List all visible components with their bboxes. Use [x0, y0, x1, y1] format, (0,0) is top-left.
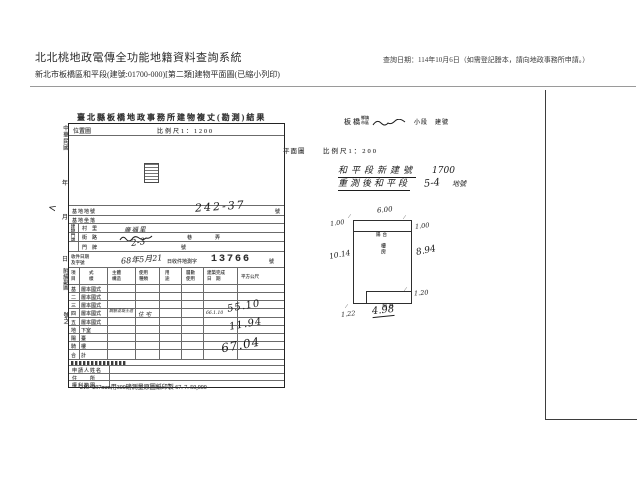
receipt-suffix: 號 — [269, 258, 274, 265]
balcony-top-strip: 陽台 — [354, 221, 411, 232]
page-edge-bottom — [545, 419, 637, 420]
plan-note2-suffix: 地號 — [452, 180, 466, 188]
col-header-usetype: 使用 種類 — [139, 270, 148, 282]
plan-scale: 比例尺1：200 — [323, 145, 378, 155]
door-label: 門 牌 — [82, 244, 97, 251]
floor-cell: 合 — [71, 352, 76, 359]
dim-top-right: 1.00 — [415, 221, 430, 230]
site-lot-label: 基地地號 — [72, 208, 96, 215]
dim-bottom: 4.98 — [371, 304, 394, 318]
site-lot-suffix: 號 — [275, 208, 280, 215]
structure-handwritten: 鋼筋混凝土造 — [109, 309, 135, 314]
form-title: 臺北縣板橋地政事務所建物複丈(勘測)結果 — [77, 112, 266, 123]
col-header-floors: 層數 使用 — [186, 270, 195, 282]
receipt-prefix: 日收件地測字 — [167, 258, 197, 265]
query-date: 查詢日期：114年10月6日（如需登記謄本，請向地政事務所申請。） — [383, 55, 589, 65]
page-edge-vertical — [545, 90, 546, 420]
form-footer-note: 210×297mm用300磅測量原圖紙印製 67. 7. 50,000 — [80, 382, 207, 391]
location-map-scale: 比例尺1：1200 — [157, 126, 214, 135]
style-cell: 計 — [81, 352, 86, 359]
plan-section-label: 小段 建號 — [414, 117, 449, 126]
plan-note2-text: 重測後和平段 — [338, 179, 410, 191]
dim-bottom-left: 1.22 — [341, 309, 356, 318]
door-suffix: 號 — [181, 244, 186, 251]
col-header-item: 項 目 — [71, 270, 76, 282]
receipt-label: 收件日期 及字號 — [71, 254, 89, 266]
street-lane-label: 巷 — [187, 234, 192, 241]
dim-left: 10.14 — [328, 248, 351, 261]
plan-township-value: 板橋 — [344, 117, 362, 127]
dim-tick: ∕ — [404, 215, 405, 221]
dim-top-left: 1.00 — [330, 218, 345, 228]
completed-date-handwritten: 66.1.10 — [206, 311, 223, 316]
header-divider — [30, 86, 636, 87]
style-cell: 層本國式 — [81, 310, 101, 317]
dim-right: 8.94 — [415, 244, 437, 258]
balcony-top-label: 陽台 — [376, 232, 389, 237]
floor-cell: 四 — [71, 310, 76, 317]
plan-header-scribble — [372, 119, 406, 127]
plan-view-label: 平面圖 — [283, 145, 306, 155]
location-stamp — [144, 163, 159, 183]
row-divider — [69, 135, 284, 136]
report-subtitle: 新北市板橋區和平段(建號:01700-000)[第二類]建物平面圖(已縮小列印) — [35, 69, 280, 80]
col-header-use: 用 途 — [165, 270, 170, 282]
location-map-label: 位置圖 — [73, 126, 91, 135]
plan-township-label: 鄉鎮 市區 — [361, 115, 369, 125]
plan-rectangle: 陽台 樓房 陽台 — [353, 220, 412, 304]
system-title: 北北桃地政電傳全功能地籍資料查詢系統 — [35, 49, 242, 65]
col-header-completed: 建築完成 日 期 — [207, 270, 225, 282]
dim-bottom-right: 1.20 — [414, 289, 429, 298]
dim-tick: ∕ — [349, 214, 350, 220]
col-header-sqm: 平方公尺 — [241, 274, 259, 280]
village-label: 村 里 — [82, 225, 97, 232]
margin-handwritten-mark: < — [47, 202, 57, 215]
dim-tick: ∕ — [346, 304, 347, 310]
dim-top: 6.00 — [377, 205, 393, 215]
survey-form: 位置圖 比例尺1：1200 基地地號 號 242-37 基地坐落 建物門牌 村 … — [68, 123, 285, 388]
document-viewer-page: 北北桃地政電傳全功能地籍資料查詢系統 查詢日期：114年10月6日（如需登記謄本… — [0, 0, 640, 480]
plan-note2: 重測後和平段 5-4 地號 — [338, 173, 466, 191]
dim-tick: ∕ — [405, 287, 406, 293]
plan-center-label: 樓房 — [379, 243, 386, 255]
receipt-row: 收件日期 及字號 68年5月21 日收件地測字 13766 號 — [69, 251, 284, 268]
receipt-number-stamp: 13766 — [211, 254, 251, 265]
receipt-date-handwritten: 68年5月21 — [121, 252, 163, 267]
plan-note2-number: 5-4 — [423, 177, 440, 190]
street-label: 街 路 — [82, 234, 97, 241]
door-value-handwritten: 2-3 — [130, 237, 146, 249]
col-header-style: 式 樣 — [89, 270, 94, 282]
col-header-structure: 主體 構造 — [112, 270, 121, 282]
street-alley-label: 弄 — [215, 234, 220, 241]
area-table-header-row: 項 目 式 樣 主體 構造 使用 種類 用 途 層數 使用 建築完成 日 期 平… — [69, 267, 284, 285]
